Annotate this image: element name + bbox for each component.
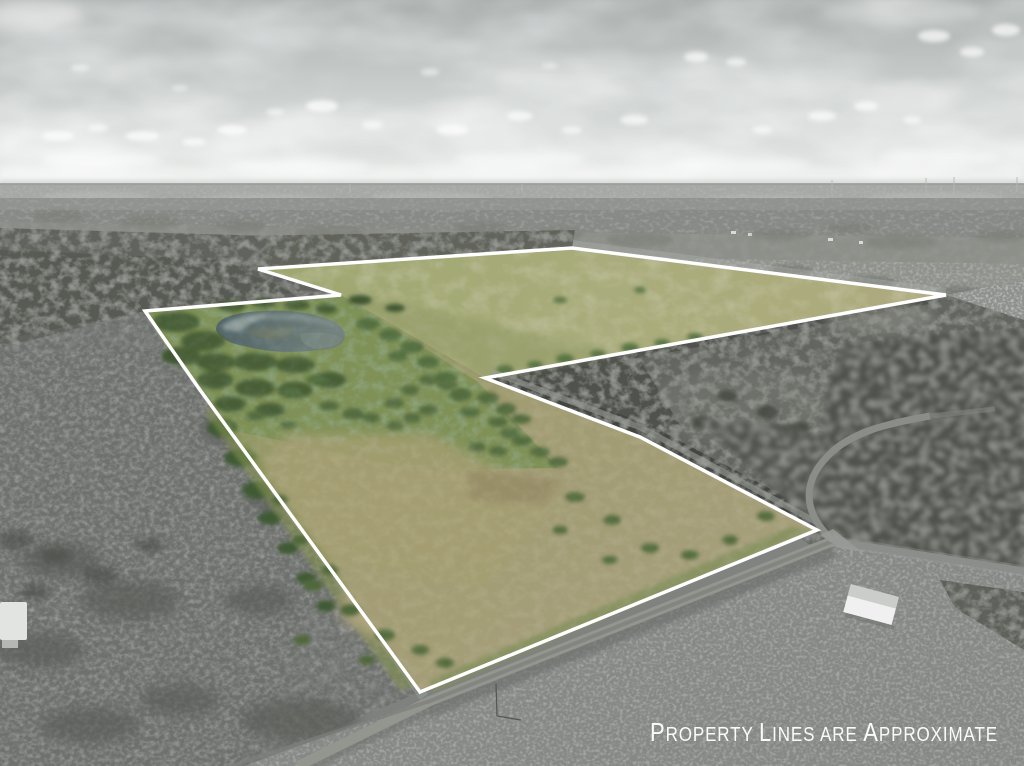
svg-text:PROPERTY LINES ARE APPROXIMATE: PROPERTY LINES ARE APPROXIMATE (650, 718, 998, 747)
